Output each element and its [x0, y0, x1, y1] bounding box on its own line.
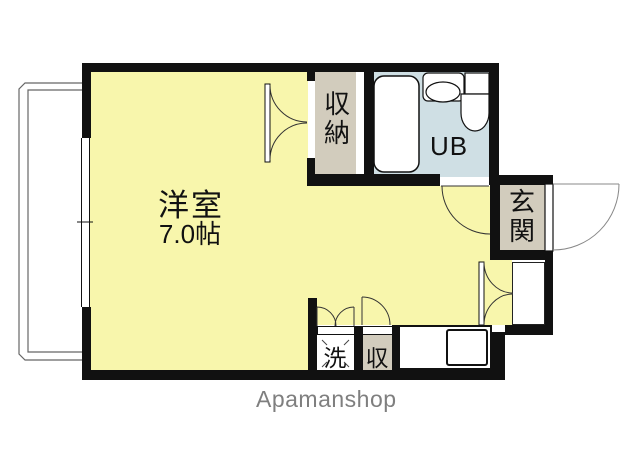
closet-label: 収 納: [320, 90, 354, 148]
watermark: Apamanshop: [256, 386, 396, 413]
entrance-char-1: 玄: [505, 188, 539, 217]
entry-door: [545, 184, 619, 251]
floorplan: 洋室 7.0帖 収 納 UB 玄 関 洗 収 Apamanshop: [0, 0, 640, 449]
shoe-closet-doors: [479, 262, 513, 325]
bathtub: [374, 76, 419, 172]
toilet: [461, 73, 489, 131]
floorplan-overlay: [0, 0, 640, 449]
entrance-label: 玄 関: [505, 188, 539, 246]
bath-door: [441, 186, 490, 234]
washbasin: [423, 73, 464, 102]
storage-label: 収: [362, 339, 392, 373]
closet-char-1: 収: [320, 90, 354, 119]
entrance-char-2: 関: [505, 217, 539, 246]
balcony: [19, 83, 82, 360]
laundry-label: 洗: [320, 339, 350, 373]
storage-door: [362, 297, 390, 325]
closet-char-2: 納: [320, 119, 354, 148]
laundry-doors: [317, 307, 354, 326]
closet-doors: [265, 84, 307, 162]
bath-label: UB: [418, 131, 480, 162]
main-room-size: 7.0帖: [138, 214, 242, 251]
